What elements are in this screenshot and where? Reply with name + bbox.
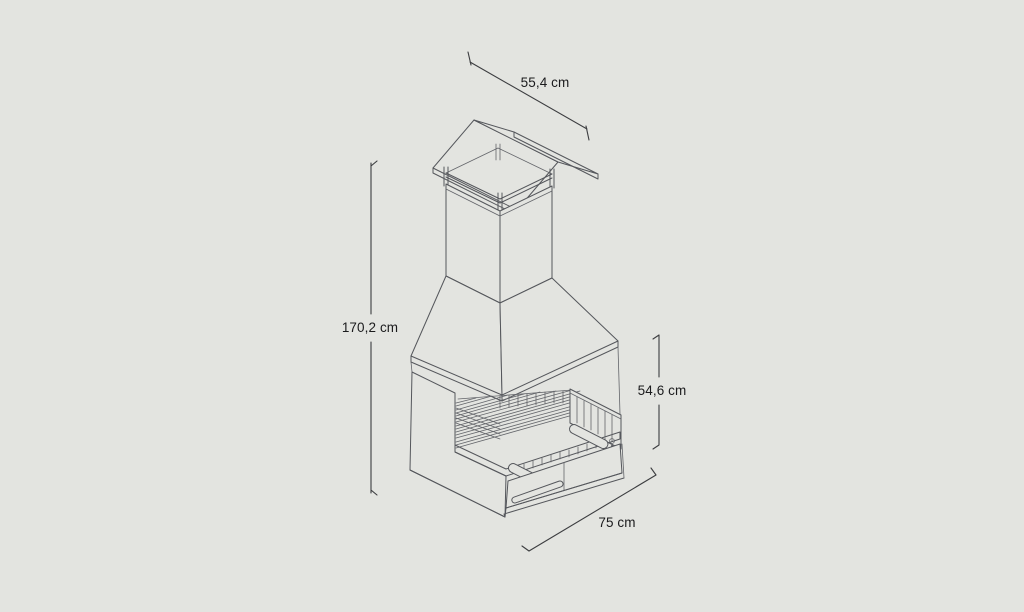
grate-bars: [456, 390, 580, 448]
latch-knob-dot: [611, 445, 613, 447]
technical-drawing-canvas: 55,4 cm 170,2 cm 54,6 cm 75 cm: [0, 0, 1024, 612]
barbecue-dimension-diagram: 55,4 cm 170,2 cm 54,6 cm 75 cm: [0, 0, 1024, 612]
grill-grate: [456, 390, 580, 448]
hood-right-face: [500, 278, 618, 395]
dimension-left-height: 170,2 cm: [342, 161, 398, 495]
dimension-label-cap-width: 55,4 cm: [521, 75, 570, 90]
dimension-label-total-height: 170,2 cm: [342, 320, 398, 335]
dimension-right-height: 54,6 cm: [638, 335, 687, 449]
hood-corner-drop-right: [618, 347, 620, 414]
dimension-label-opening-height: 54,6 cm: [638, 383, 687, 398]
hood-corner-drop-left: [411, 362, 412, 372]
dimension-label-base-width: 75 cm: [598, 515, 635, 530]
